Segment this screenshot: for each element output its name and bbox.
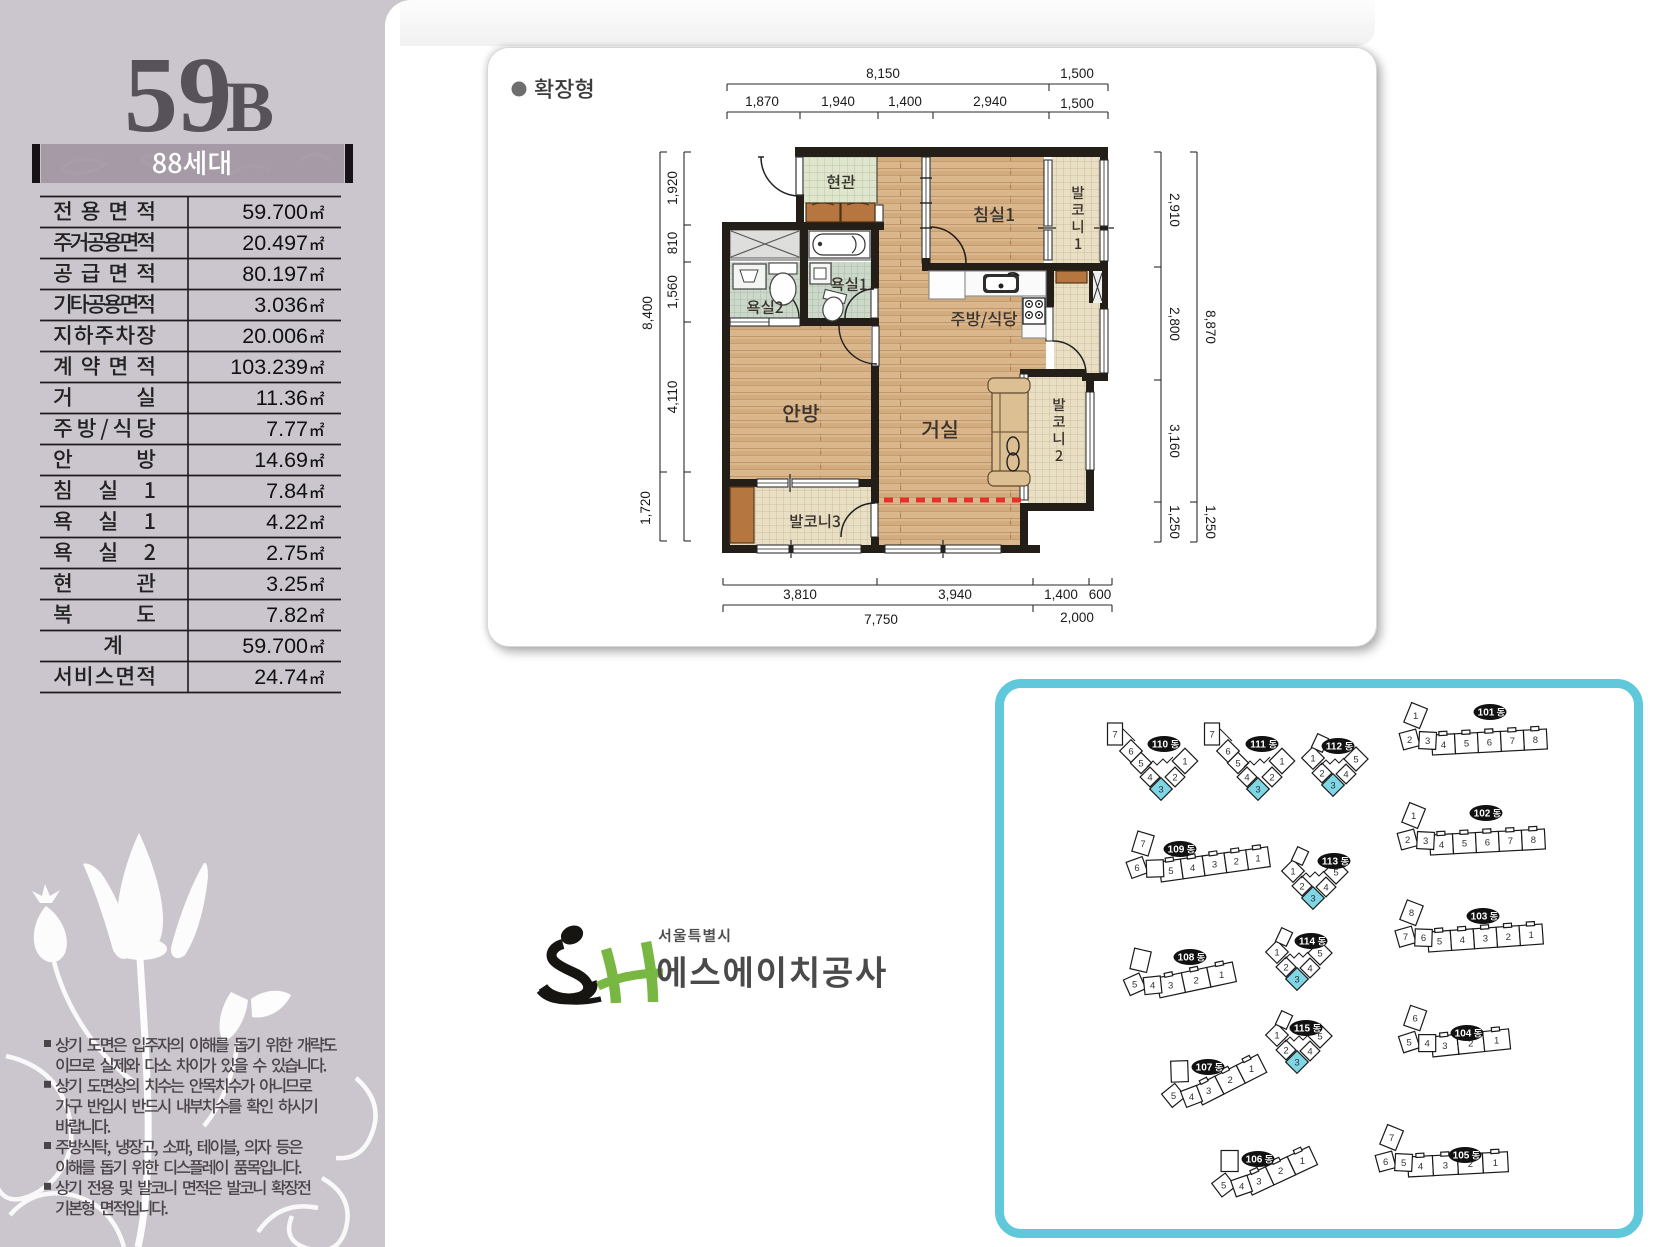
svg-text:2,000: 2,000 (1060, 610, 1094, 625)
svg-text:3: 3 (1310, 893, 1315, 904)
svg-text:2.75: 2.75 (266, 541, 308, 565)
svg-text:4: 4 (1307, 963, 1312, 974)
svg-text:5: 5 (1401, 1158, 1406, 1169)
svg-text:6: 6 (1225, 746, 1230, 757)
svg-text:1: 1 (1274, 1030, 1279, 1041)
svg-text:1,400: 1,400 (1044, 587, 1078, 602)
svg-text:1,870: 1,870 (745, 94, 779, 109)
svg-text:4: 4 (1244, 772, 1249, 783)
svg-text:59.700: 59.700 (242, 634, 308, 658)
svg-text:1,250: 1,250 (1203, 505, 1218, 539)
svg-text:4: 4 (1150, 981, 1155, 992)
svg-text:105: 105 (1453, 1151, 1470, 1162)
svg-text:1,500: 1,500 (1060, 96, 1094, 111)
svg-text:3: 3 (1168, 981, 1173, 992)
svg-text:3: 3 (1483, 933, 1488, 944)
svg-text:1: 1 (1255, 854, 1260, 865)
svg-text:8: 8 (1409, 908, 1414, 919)
svg-text:4: 4 (1418, 1162, 1423, 1173)
svg-text:7: 7 (1403, 932, 1408, 943)
svg-text:3,940: 3,940 (938, 587, 972, 602)
svg-text:1: 1 (1279, 756, 1284, 767)
svg-text:2: 2 (1234, 857, 1239, 868)
svg-text:5: 5 (1353, 754, 1358, 765)
svg-text:3: 3 (1442, 1041, 1447, 1052)
svg-text:11.36: 11.36 (256, 386, 308, 410)
svg-text:2,800: 2,800 (1167, 307, 1182, 341)
svg-text:103.239: 103.239 (230, 355, 308, 379)
svg-text:108: 108 (1178, 953, 1195, 964)
svg-text:1: 1 (1290, 866, 1295, 877)
svg-text:7: 7 (1112, 729, 1117, 740)
svg-text:6: 6 (1128, 746, 1133, 757)
svg-text:1: 1 (1411, 811, 1416, 822)
svg-text:3: 3 (1294, 974, 1299, 985)
svg-text:111: 111 (1250, 740, 1266, 751)
svg-text:3.036: 3.036 (254, 293, 308, 317)
svg-text:4,110: 4,110 (665, 381, 680, 414)
svg-text:107: 107 (1196, 1063, 1213, 1074)
svg-text:114: 114 (1299, 937, 1316, 948)
svg-text:5: 5 (1464, 739, 1469, 750)
svg-text:B: B (226, 67, 274, 147)
svg-text:7,750: 7,750 (864, 612, 898, 627)
svg-text:113: 113 (1322, 857, 1339, 868)
svg-text:3: 3 (1330, 780, 1335, 791)
svg-text:5: 5 (1333, 867, 1338, 878)
svg-text:3: 3 (1443, 1160, 1448, 1171)
svg-text:1,500: 1,500 (1060, 66, 1094, 81)
svg-text:6: 6 (1383, 1157, 1388, 1168)
svg-text:7: 7 (1209, 729, 1214, 740)
svg-text:1: 1 (1413, 711, 1418, 722)
svg-text:115: 115 (1294, 1024, 1311, 1035)
svg-text:1: 1 (1274, 947, 1279, 958)
svg-text:4: 4 (1425, 1039, 1430, 1050)
svg-text:14.69: 14.69 (254, 448, 308, 472)
svg-text:80.197: 80.197 (242, 262, 308, 286)
svg-text:106: 106 (1246, 1155, 1263, 1166)
svg-text:1: 1 (1249, 1064, 1254, 1075)
svg-text:1,920: 1,920 (665, 171, 680, 205)
svg-text:2,940: 2,940 (973, 94, 1007, 109)
svg-text:2: 2 (1269, 772, 1274, 783)
svg-text:2: 2 (1283, 962, 1288, 973)
svg-text:5: 5 (1407, 1038, 1412, 1049)
svg-text:6: 6 (1413, 1014, 1418, 1025)
svg-text:3: 3 (1294, 1057, 1299, 1068)
svg-text:1,560: 1,560 (665, 275, 680, 309)
svg-text:6: 6 (1134, 863, 1139, 874)
svg-text:5: 5 (1235, 758, 1240, 769)
svg-text:1,720: 1,720 (638, 491, 653, 525)
svg-text:2: 2 (1299, 881, 1304, 892)
svg-text:8: 8 (1533, 735, 1538, 746)
svg-text:2: 2 (1172, 772, 1177, 783)
svg-text:5: 5 (1462, 839, 1467, 850)
svg-text:3: 3 (1425, 736, 1430, 747)
svg-text:3: 3 (1255, 784, 1260, 795)
svg-text:1: 1 (1219, 970, 1224, 981)
svg-text:6: 6 (1421, 933, 1426, 944)
svg-text:112: 112 (1326, 742, 1343, 753)
svg-text:103: 103 (1471, 912, 1488, 923)
svg-text:8,400: 8,400 (640, 296, 655, 330)
svg-text:1: 1 (1493, 1158, 1498, 1169)
svg-text:1: 1 (1182, 756, 1187, 767)
svg-text:1: 1 (1310, 753, 1315, 764)
svg-text:59.700: 59.700 (242, 200, 308, 224)
svg-text:3: 3 (1212, 860, 1217, 871)
svg-text:4: 4 (1189, 1092, 1194, 1103)
svg-text:2: 2 (1319, 768, 1324, 779)
svg-text:3,160: 3,160 (1167, 424, 1182, 458)
svg-text:4: 4 (1460, 935, 1465, 946)
svg-text:4: 4 (1323, 882, 1328, 893)
svg-text:7: 7 (1389, 1133, 1394, 1144)
svg-text:4: 4 (1147, 772, 1152, 783)
svg-text:1,940: 1,940 (821, 94, 855, 109)
svg-text:3,810: 3,810 (783, 587, 817, 602)
svg-text:7: 7 (1508, 836, 1513, 847)
svg-text:7.82: 7.82 (266, 603, 308, 627)
svg-text:6: 6 (1485, 837, 1490, 848)
svg-text:7.84: 7.84 (266, 479, 308, 503)
svg-text:24.74: 24.74 (254, 665, 308, 689)
svg-text:20.497: 20.497 (242, 231, 308, 255)
svg-text:3: 3 (1423, 836, 1428, 847)
svg-text:2: 2 (1506, 932, 1511, 943)
svg-text:7.77: 7.77 (266, 417, 308, 441)
svg-text:4: 4 (1343, 769, 1348, 780)
svg-text:4: 4 (1441, 740, 1446, 751)
svg-text:600: 600 (1089, 587, 1112, 602)
svg-text:4: 4 (1439, 840, 1444, 851)
svg-text:8,150: 8,150 (866, 66, 900, 81)
svg-text:5: 5 (1437, 937, 1442, 948)
svg-text:5: 5 (1168, 866, 1173, 877)
svg-text:104: 104 (1455, 1029, 1472, 1040)
svg-text:4: 4 (1307, 1046, 1312, 1057)
svg-text:5: 5 (1221, 1180, 1226, 1191)
svg-text:3.25: 3.25 (266, 572, 308, 596)
svg-text:7: 7 (1510, 736, 1515, 747)
svg-text:2: 2 (1407, 735, 1412, 746)
svg-text:7: 7 (1140, 839, 1145, 850)
svg-text:6: 6 (1487, 737, 1492, 748)
svg-text:59: 59 (124, 36, 232, 155)
svg-text:1: 1 (1300, 1156, 1305, 1167)
svg-text:3: 3 (1206, 1086, 1211, 1097)
svg-text:5: 5 (1317, 948, 1322, 959)
svg-text:1,400: 1,400 (888, 94, 922, 109)
svg-text:2: 2 (1405, 835, 1410, 846)
svg-text:5: 5 (1138, 758, 1143, 769)
svg-text:5: 5 (1171, 1091, 1176, 1102)
svg-text:102: 102 (1474, 809, 1491, 820)
svg-text:810: 810 (665, 232, 680, 255)
svg-text:2: 2 (1227, 1075, 1232, 1086)
svg-text:4: 4 (1239, 1181, 1244, 1192)
svg-text:2,910: 2,910 (1167, 193, 1182, 227)
svg-text:5: 5 (1132, 980, 1137, 991)
svg-text:3: 3 (1158, 784, 1163, 795)
svg-text:3: 3 (1256, 1176, 1261, 1187)
svg-text:2: 2 (1283, 1045, 1288, 1056)
svg-text:1,250: 1,250 (1167, 505, 1182, 539)
svg-text:1: 1 (1494, 1036, 1499, 1047)
svg-text:4.22: 4.22 (266, 510, 308, 534)
svg-text:8: 8 (1531, 835, 1536, 846)
svg-text:2: 2 (1278, 1166, 1283, 1177)
svg-text:109: 109 (1168, 845, 1185, 856)
svg-text:20.006: 20.006 (242, 324, 308, 348)
svg-text:4: 4 (1190, 863, 1195, 874)
svg-text:2: 2 (1193, 975, 1198, 986)
svg-text:1: 1 (1529, 930, 1534, 941)
svg-text:110: 110 (1152, 740, 1169, 751)
svg-text:101: 101 (1478, 708, 1495, 719)
svg-text:8,870: 8,870 (1203, 310, 1218, 344)
